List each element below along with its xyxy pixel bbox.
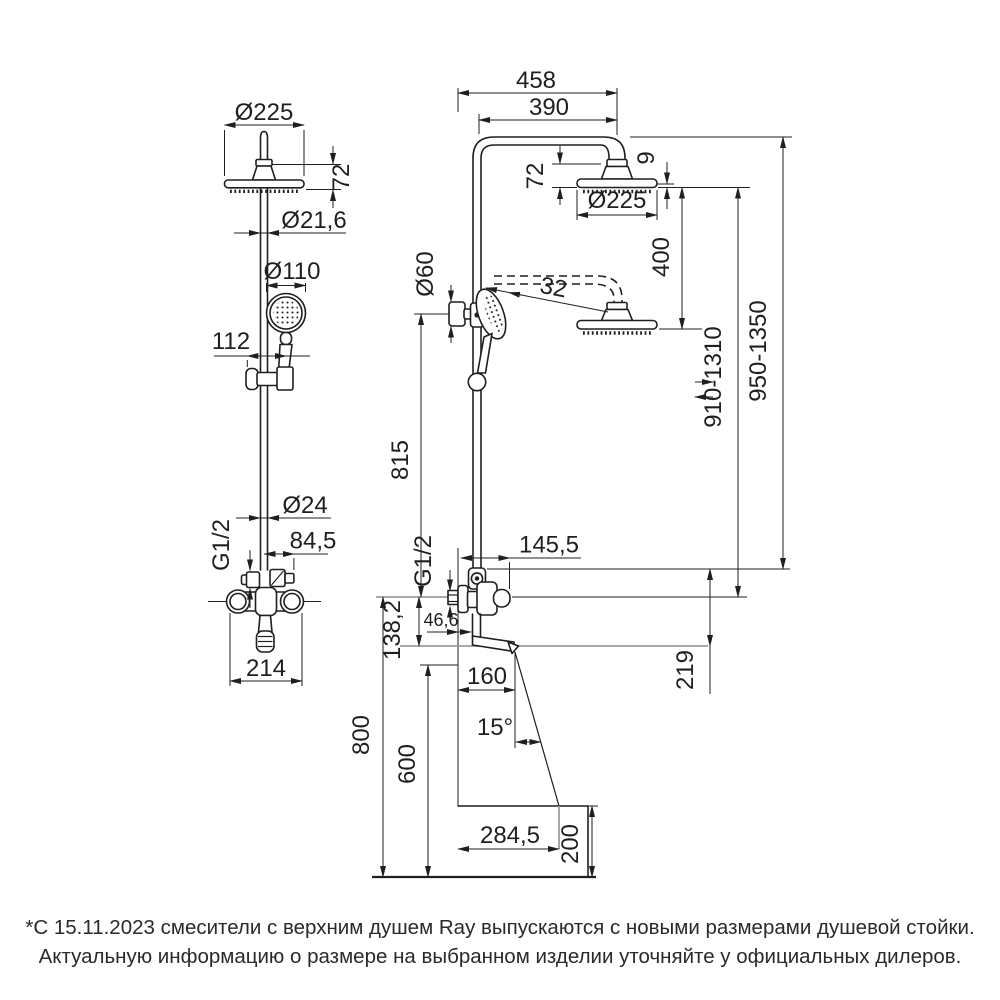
dim-side-arm-note-label: 32 [538,272,569,304]
front-shower-head-disc [225,180,305,188]
dim-side-spout-drop: 138,2 [379,597,419,660]
dim-side-head-drop-label: 400 [648,237,675,277]
dim-side-arm-note: 32 [486,272,608,312]
dim-side-bracket-diameter: Ø60 [412,251,451,343]
side-shower-head-disc-lowered [577,321,657,330]
side-view: 458 390 72 9 Ø225 400 [348,67,792,877]
side-arm-lowered-position [494,276,657,333]
dim-front-handshower-diameter-label: Ø110 [264,258,321,285]
dim-side-install-height: 800 [348,597,383,877]
dim-front-outlet-offset-label: 84,5 [290,528,337,555]
dim-side-reach-total-label: 458 [516,67,556,94]
dim-side-arm-reach: 390 [479,94,617,134]
dim-side-head-drop: 400 [648,188,682,330]
dim-side-bar-height-label: 815 [387,440,414,480]
dim-side-wall-offset-label: 46,6 [423,610,458,630]
dim-front-head-height: 72 [272,146,355,208]
dim-side-clearance-height-label: 600 [394,744,421,784]
dim-front-top-pipe-diameter-label: Ø21,6 [281,207,346,234]
water-stream-line [515,652,559,806]
side-reference-lines [372,88,792,877]
dim-front-pipe-diameter: Ø24 [236,492,331,519]
front-mixer [208,588,321,653]
footnote: *С 15.11.2023 смесители с верхним душем … [25,916,974,968]
footnote-line2: Актуальную информацию о размере на выбра… [39,945,962,968]
dim-side-clearance-height: 600 [394,665,428,877]
dim-side-column-height-max-label: 950-1350 [745,300,772,401]
technical-drawing-page: Ø225 72 Ø21,6 Ø110 112 [0,0,1000,1000]
side-slider-knob [468,373,485,390]
dim-side-head-rim-label: 9 [633,151,660,164]
front-hand-shower [267,294,306,374]
dim-front-bracket-offset-label: 112 [212,328,250,355]
dim-front-head-diameter-label: Ø225 [235,99,294,126]
dim-side-stream-angle: 15° [477,714,541,742]
dim-front-pipe-diameter-label: Ø24 [282,492,327,519]
dim-side-head-height-label: 72 [522,163,549,190]
dim-side-lever-depth-label: 145,5 [519,532,579,559]
footnote-line1: *С 15.11.2023 смесители с верхним душем … [25,916,974,939]
dim-front-outlet-offset: 84,5 [264,528,336,571]
dim-side-zone-depth: 200 [557,806,598,877]
dim-side-spout-reach: 160 [458,663,515,690]
dim-front-handshower-diameter: Ø110 [264,258,321,292]
side-hand-shower [468,285,511,390]
dim-side-column-height-adjust: 910-1310 [695,188,738,598]
side-mixer-lever [494,590,511,608]
front-view: Ø225 72 Ø21,6 Ø110 112 [208,99,355,686]
dim-side-install-height-label: 800 [348,715,375,755]
dim-side-zone-depth-label: 200 [557,824,584,864]
dim-side-stream-reach-label: 284,5 [480,822,540,849]
dim-side-head-diameter-label: Ø225 [588,187,647,214]
dim-side-head-diameter: Ø225 [577,187,657,220]
dim-front-head-height-label: 72 [328,164,355,191]
front-supply-fittings [242,570,294,588]
front-riser-pipe [261,132,268,571]
dim-side-column-height-adjust-label: 910-1310 [700,326,727,427]
dim-side-column-height-max: 950-1350 [745,137,783,569]
dim-side-thread-label: G1/2 [410,535,437,587]
shower-system-dimension-drawing: Ø225 72 Ø21,6 Ø110 112 [0,0,1000,1000]
dim-side-stream-angle-label: 15° [477,714,513,741]
dim-side-stream-reach: 284,5 [458,822,559,849]
dim-side-arm-reach-label: 390 [529,94,569,121]
side-spout [473,614,519,654]
dim-side-spout-reach-label: 160 [467,663,507,690]
dim-side-thread: G1/2 [410,535,450,621]
dim-side-bracket-diameter-label: Ø60 [412,251,439,296]
dim-front-top-pipe-diameter: Ø21,6 [234,207,347,234]
dim-front-mixer-width-label: 214 [246,655,286,682]
dim-front-thread-label: G1/2 [208,519,235,571]
dim-side-outlet-height: 219 [672,569,710,694]
front-wall-bracket [246,367,293,390]
dim-side-outlet-height-label: 219 [672,650,699,690]
